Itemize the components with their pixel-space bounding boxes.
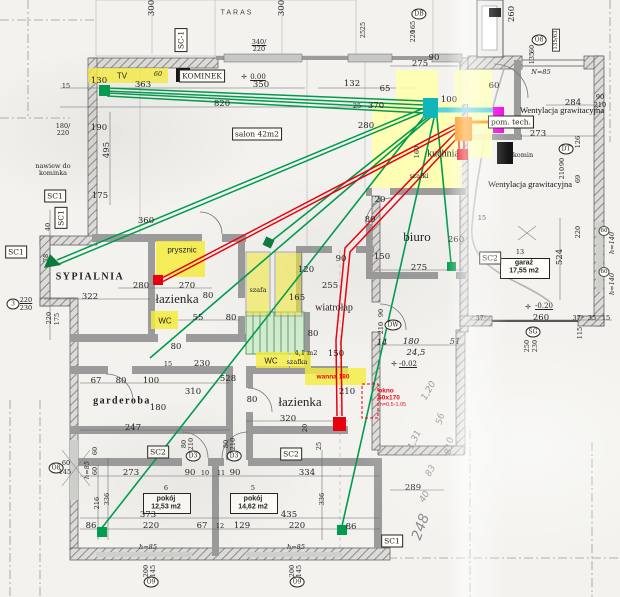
plan-label: 145 [59,468,71,476]
plan-label: 6 [164,484,168,492]
floor-plan: TARAS300300340/220SC-1TV60KOMINEK✛0.0015… [0,0,620,597]
plan-label: 90 [429,53,440,63]
plan-label: 80 [116,376,127,386]
plan-label: D3 [186,451,201,462]
plan-label: 100 [143,376,159,386]
plan-label: salon 42m2 [232,128,282,141]
plan-label: 289 [405,483,421,493]
plan-label: 78 [42,254,50,262]
plan-label: biuro [403,229,430,245]
plan-label: 248 [409,512,433,543]
plan-label: N=85 [531,68,550,76]
plan-label: 80 [308,329,319,339]
plan-label: 273 [123,468,139,478]
plan-label: 40 [44,223,52,231]
plan-label: 275 [411,263,427,273]
plan-label: 80 [226,313,237,323]
plan-label: 280 [133,281,149,291]
plan-label: Wentylacja grawitacyjna [488,179,572,189]
plan-label: 230 [194,359,210,369]
plan-label: 100 [441,95,457,105]
plan-label: 260 [448,235,464,245]
plan-label: 220 [289,521,305,531]
plan-label: O9 [144,577,159,588]
plan-label: TARAS [221,10,254,17]
plan-label: 15 [478,214,486,222]
plan-label: 90 [336,254,347,264]
plan-label: 210 [558,167,566,179]
plan-label: 260 [533,313,549,323]
plan-label: 180 [403,337,419,347]
plan-label: kominka [39,169,67,177]
plan-label: 5 [251,484,255,492]
plan-label: h=85 [287,543,305,551]
plan-label: 20 [301,424,309,432]
plan-label: komin [513,151,533,159]
plan-label: 150 [328,349,344,359]
plan-label: 90 [558,158,566,166]
plan-label: 60 [91,447,99,455]
plan-label: ✛ [525,303,531,311]
plan-label: h=85 [139,543,157,551]
plan-label: 37⁵ [476,314,487,322]
plan-label: 86 [86,521,97,531]
plan-label: 10 [201,469,209,477]
plan-label: 336 [103,493,111,505]
plan-label: 247 [125,423,141,433]
plan-label: 24,5 [407,348,426,358]
plan-label: 55 [193,313,204,323]
plan-label: WC [158,317,171,326]
plan-label: prysznic [167,246,196,255]
plan-label: 3 [7,299,20,310]
plan-label: 14 [377,338,388,348]
plan-label: 65 [380,84,391,94]
plan-label: h=140 [608,273,616,295]
plan-label: 334 [299,468,315,478]
plan-label: 67 [197,521,208,531]
plan-label: 270 [179,281,195,291]
plan-label: 230 [20,304,32,312]
plan-label: 255 [322,281,338,291]
plan-label: 25 [359,30,367,38]
label-layer: TARAS300300340/220SC-1TV60KOMINEK✛0.0015… [0,0,620,597]
plan-label: 1,20 [420,380,439,402]
plan-label: -0.20 [535,302,553,310]
plan-label: SC1 [381,535,403,548]
plan-label: 220 [253,45,265,53]
plan-label: 220 [45,312,53,324]
plan-label: garderoba [93,396,151,407]
plan-label: 216 [93,497,101,509]
plan-label: 15 [602,314,610,322]
plan-label: 175 [53,313,61,325]
plan-label: SC2 [479,252,501,265]
plan-label: 250 [523,340,531,352]
plan-label: 15 [62,82,70,90]
plan-label: szafa [250,286,267,294]
plan-label: 190 [91,123,107,133]
plan-label: h=85 [83,461,91,479]
plan-label: 129 [234,521,250,531]
plan-label: 86 [346,522,357,532]
plan-label: garaż [515,260,533,267]
plan-label: 210 [187,438,195,450]
plan-label: 80 [171,342,182,352]
plan-label: 260 [507,6,517,22]
plan-label: 11 [217,469,225,477]
plan-label: SC-1 [175,28,188,52]
plan-label: 435 [281,510,297,520]
plan-label: 350 [253,80,269,90]
plan-label: 310 [185,387,201,397]
plan-label: -0.02 [399,360,417,368]
plan-label: 495 [102,142,112,158]
plan-label: 230 [531,340,539,352]
plan-label: 210 [339,387,355,397]
plan-label: 80 [203,291,214,301]
plan-label: SYPIALNIA [56,272,125,283]
plan-label: pokój [244,496,263,503]
plan-label: 90 [185,468,196,478]
plan-label: 220 [20,296,32,304]
plan-label: 60x170 [378,395,400,402]
plan-label: SC1 [55,207,68,229]
plan-label: 135 [528,52,536,64]
plan-label: h=0.5-1.05 [380,402,406,408]
plan-label: 220 [57,129,69,137]
plan-label: 363 [135,80,151,90]
plan-label: 130 [91,76,107,86]
plan-label: 320 [280,414,296,424]
plan-label: 322 [82,292,98,302]
plan-label: 370 [368,101,384,111]
plan-label: 210 [229,438,237,450]
plan-label: kuchnia [427,149,459,160]
plan-label: O8 [532,35,547,46]
plan-label: 820 [214,99,230,109]
plan-label: 25 [353,102,361,110]
plan-label: 273 [530,129,546,139]
plan-label: 150 [374,252,390,262]
plan-label: 165 [289,293,305,303]
plan-label: 69 [574,175,582,183]
plan-label: łazienka [155,291,198,307]
plan-label: SC1 [44,190,66,203]
plan-label: 1,31 [406,429,424,451]
plan-label: 80 [247,395,258,405]
plan-label: WC [264,357,277,366]
plan-label: 115 [576,327,584,339]
plan-label: SC2 [147,446,169,459]
plan-label: 60 [154,70,162,78]
plan-label: pom. tech. [488,116,534,129]
plan-label: 12 [216,522,224,530]
plan-label: 60 [91,467,99,475]
plan-label: 145 [149,565,157,577]
plan-label: 20 [375,195,386,205]
plan-label: 37⁵ [573,314,584,322]
plan-label: 135/63 [552,28,560,51]
plan-label: 300 [277,0,287,16]
plan-label: 51 [450,337,461,347]
plan-label: 60 [62,459,70,467]
plan-label: 83 [424,464,438,479]
plan-label: ✛ [391,360,397,368]
plan-label: SG [526,327,541,338]
plan-label: 275 [412,59,428,69]
plan-label: 90 [596,93,604,101]
plan-label: 810 [444,437,457,456]
plan-label: 35 [588,314,596,322]
plan-label: 120 [298,265,314,275]
plan-label: 80 [365,215,376,225]
plan-label: 14,62 m2 [238,504,268,511]
plan-label: 220 [409,30,417,42]
plan-label: DW [385,320,402,331]
plan-label: 17,55 m2 [509,268,539,275]
plan-label: 132 [344,79,360,89]
plan-label: 25 [315,442,323,450]
plan-label: ✛ [241,73,247,81]
plan-label: 373 [140,510,156,520]
plan-label: okno [378,388,394,395]
plan-label: szafki [409,172,428,180]
plan-label: 56 [435,412,448,426]
plan-label: SC1 [5,246,27,259]
plan-label: 220 [574,226,582,238]
plan-label: DB [411,9,426,20]
plan-label: 60 [489,81,500,91]
plan-label: h=140 [608,232,616,254]
plan-label: 336 [318,493,326,505]
plan-label: 280 [358,121,374,131]
plan-label: 524 [555,249,565,265]
plan-label: KOMINEK [179,70,225,83]
plan-label: TV [117,72,127,81]
plan-label: wanna 180 [317,374,350,381]
plan-label: 90 [377,309,385,317]
plan-label: 180 [150,403,166,413]
plan-label: 300 [147,0,157,16]
plan-label: 90 [230,468,241,478]
plan-label: 145 [295,565,303,577]
plan-label: 360 [138,216,154,226]
plan-label: 528 [220,374,236,384]
plan-label: 4,1 m2 [295,349,318,357]
plan-label: pokój [157,496,176,503]
plan-label: 15 [164,360,172,368]
plan-label: wiatrołap [315,303,353,314]
plan-label: D3 [227,451,242,462]
plan-label: 160 [413,146,421,158]
plan-label: szafka [287,358,308,366]
plan-label: łazienka [278,394,321,410]
plan-label: 220 [143,521,159,531]
plan-label: 13 [516,248,524,256]
plan-label: Wentylacja grawitacyjna [520,105,604,115]
plan-label: SC2 [280,448,302,461]
plan-label: 67 [91,376,102,386]
plan-label: DT [559,144,574,155]
plan-label: 126 [574,136,582,148]
plan-label: 175 [92,191,108,201]
plan-label: O9 [290,577,305,588]
